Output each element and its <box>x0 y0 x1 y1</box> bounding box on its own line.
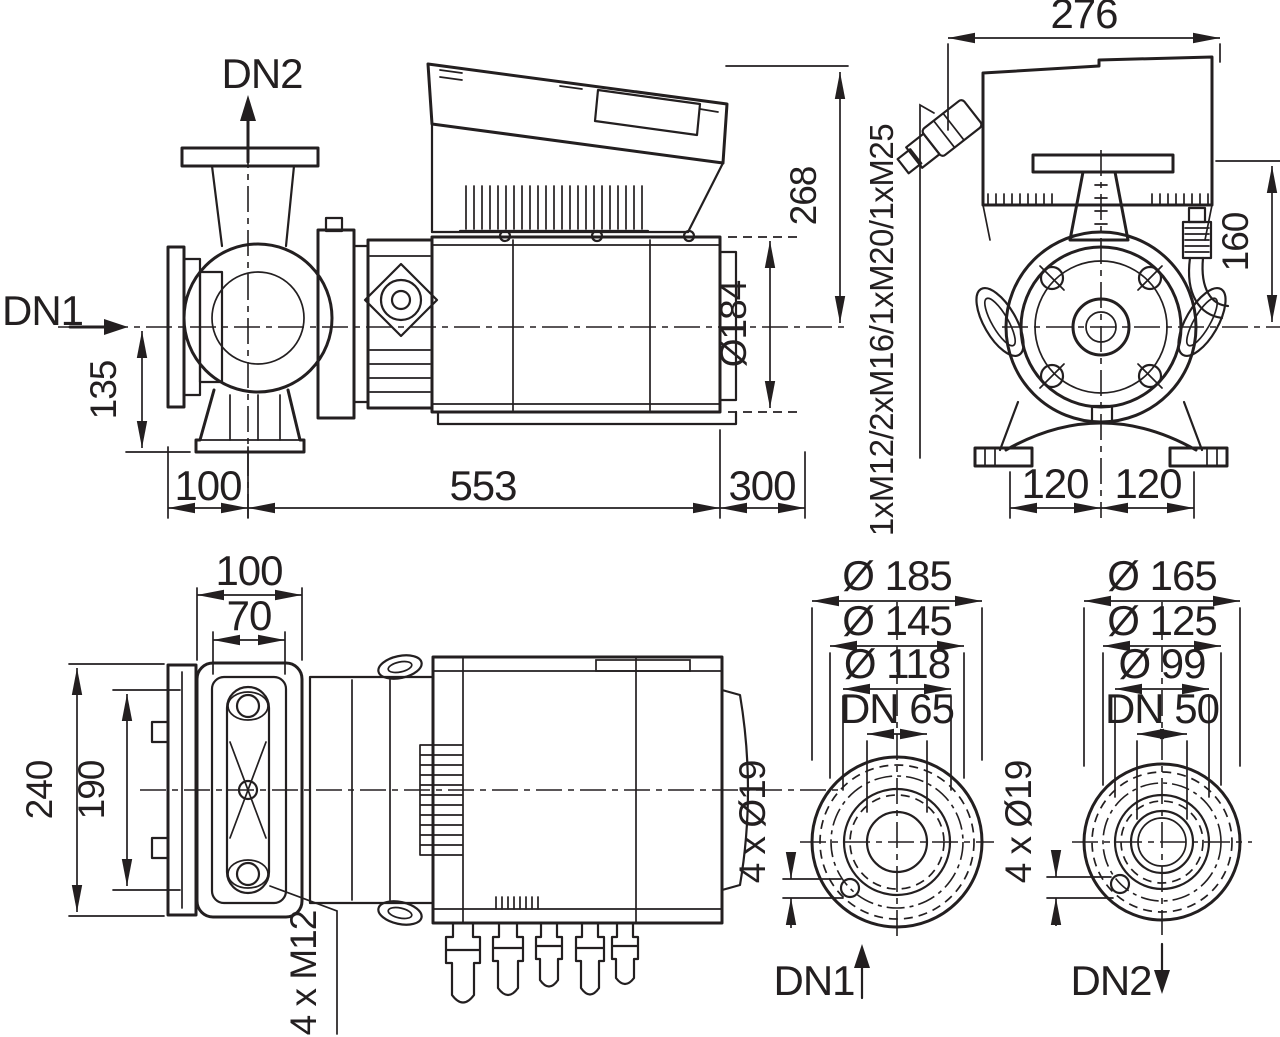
dim-276: 276 <box>948 0 1220 130</box>
valve-boss <box>365 264 437 336</box>
cable-gland-label: 1xM12/2xM16/1xM20/1xM25 <box>863 124 900 536</box>
dim-plan-70-label: 70 <box>227 592 272 639</box>
view-flange-dn2: Ø 165 Ø 125 Ø 99 DN 50 4 x Ø19 <box>998 552 1252 1004</box>
dim-dn2-bolt-holes: 4 x Ø19 <box>998 761 1113 926</box>
view-flange-dn1: Ø 185 Ø 145 Ø 118 DN 65 4 x Ø19 <box>732 552 994 1004</box>
dn2-label: DN2 <box>221 50 302 97</box>
dim-diameter-184: Ø184 <box>713 237 802 412</box>
display-window <box>595 90 700 135</box>
dn2-port-arrow <box>1154 944 1170 994</box>
cable-gland-spec: 1xM12/2xM16/1xM20/1xM25 <box>863 105 934 536</box>
drawing-canvas: DN1 DN2 135 100 553 300 <box>0 0 1280 1037</box>
dim-300-label: 300 <box>728 462 795 509</box>
bolt-callout-m12: 4 x M12 <box>270 886 337 1035</box>
discharge-flange <box>182 148 318 246</box>
dim-dn2-holes-label: 4 x Ø19 <box>998 761 1039 884</box>
motor-skirt <box>438 412 736 424</box>
control-module-front <box>983 57 1212 240</box>
dim-dn2-od-label: Ø 165 <box>1107 552 1216 599</box>
dn1-port-arrow <box>854 944 870 998</box>
dim-dn2-rf-label: Ø 99 <box>1118 640 1205 687</box>
dim-276-label: 276 <box>1050 0 1117 37</box>
view-side-elevation: DN1 DN2 135 100 553 300 <box>2 50 848 518</box>
view-front-elevation: 276 160 120 120 1xM12/2xM16/1xM20/1xM25 <box>863 0 1280 536</box>
casing-wing-left <box>967 281 1033 363</box>
view-plan: 100 70 240 190 4 x M12 <box>19 547 838 1035</box>
cable-glands-plan <box>446 923 638 1003</box>
dn2-port-label: DN2 <box>1070 957 1151 1004</box>
dn2-flow-arrow <box>240 95 256 162</box>
dim-plan-190-label: 190 <box>71 760 112 819</box>
dim-dn1-rf-label: Ø 118 <box>844 640 950 687</box>
bolt-hole-dn1 <box>841 879 859 897</box>
cable-gland <box>893 99 983 180</box>
heatsink-fins <box>466 186 642 229</box>
dim-100-label: 100 <box>174 462 241 509</box>
vent-hatch <box>496 897 538 909</box>
dim-dn1-bore-label: DN 65 <box>840 685 954 732</box>
dim-dn1-od-label: Ø 185 <box>842 552 951 599</box>
dim-dn2-bore-label: DN 50 <box>1105 685 1219 732</box>
dimensional-drawing: DN1 DN2 135 100 553 300 <box>0 0 1280 1037</box>
volute <box>184 244 332 392</box>
dn1-port-label: DN1 <box>773 957 854 1004</box>
dim-plan-100-label: 100 <box>215 547 282 594</box>
dim-268-label: 268 <box>783 167 824 226</box>
dim-dn1-holes-label: 4 x Ø19 <box>732 761 773 884</box>
dim-553-label: 553 <box>449 462 516 509</box>
casing-wing-right <box>1169 281 1235 363</box>
dim-184-label: Ø184 <box>713 280 754 367</box>
lantern-bracket <box>318 218 437 418</box>
dim-135: 135 <box>83 331 190 452</box>
dim-bottom-row: 100 553 300 <box>168 430 805 518</box>
bolt-callout-m12-label: 4 x M12 <box>283 911 324 1036</box>
side-fins-plan <box>420 745 462 855</box>
dim-120-row: 120 120 <box>1010 460 1194 518</box>
dim-120-right-label: 120 <box>1114 460 1181 507</box>
motor-plan <box>310 652 748 1003</box>
dim-dn2-bc-label: Ø 125 <box>1107 597 1216 644</box>
dim-135-label: 135 <box>83 360 124 419</box>
pump-foot <box>196 390 304 452</box>
dim-120-left-label: 120 <box>1021 460 1088 507</box>
dim-160-label: 160 <box>1215 212 1256 271</box>
dim-dn1-bc-label: Ø 145 <box>842 597 951 644</box>
dim-plan-240-label: 240 <box>19 760 60 819</box>
dim-dn1-bolt-holes: 4 x Ø19 <box>732 761 843 928</box>
dn1-label: DN1 <box>2 287 83 334</box>
